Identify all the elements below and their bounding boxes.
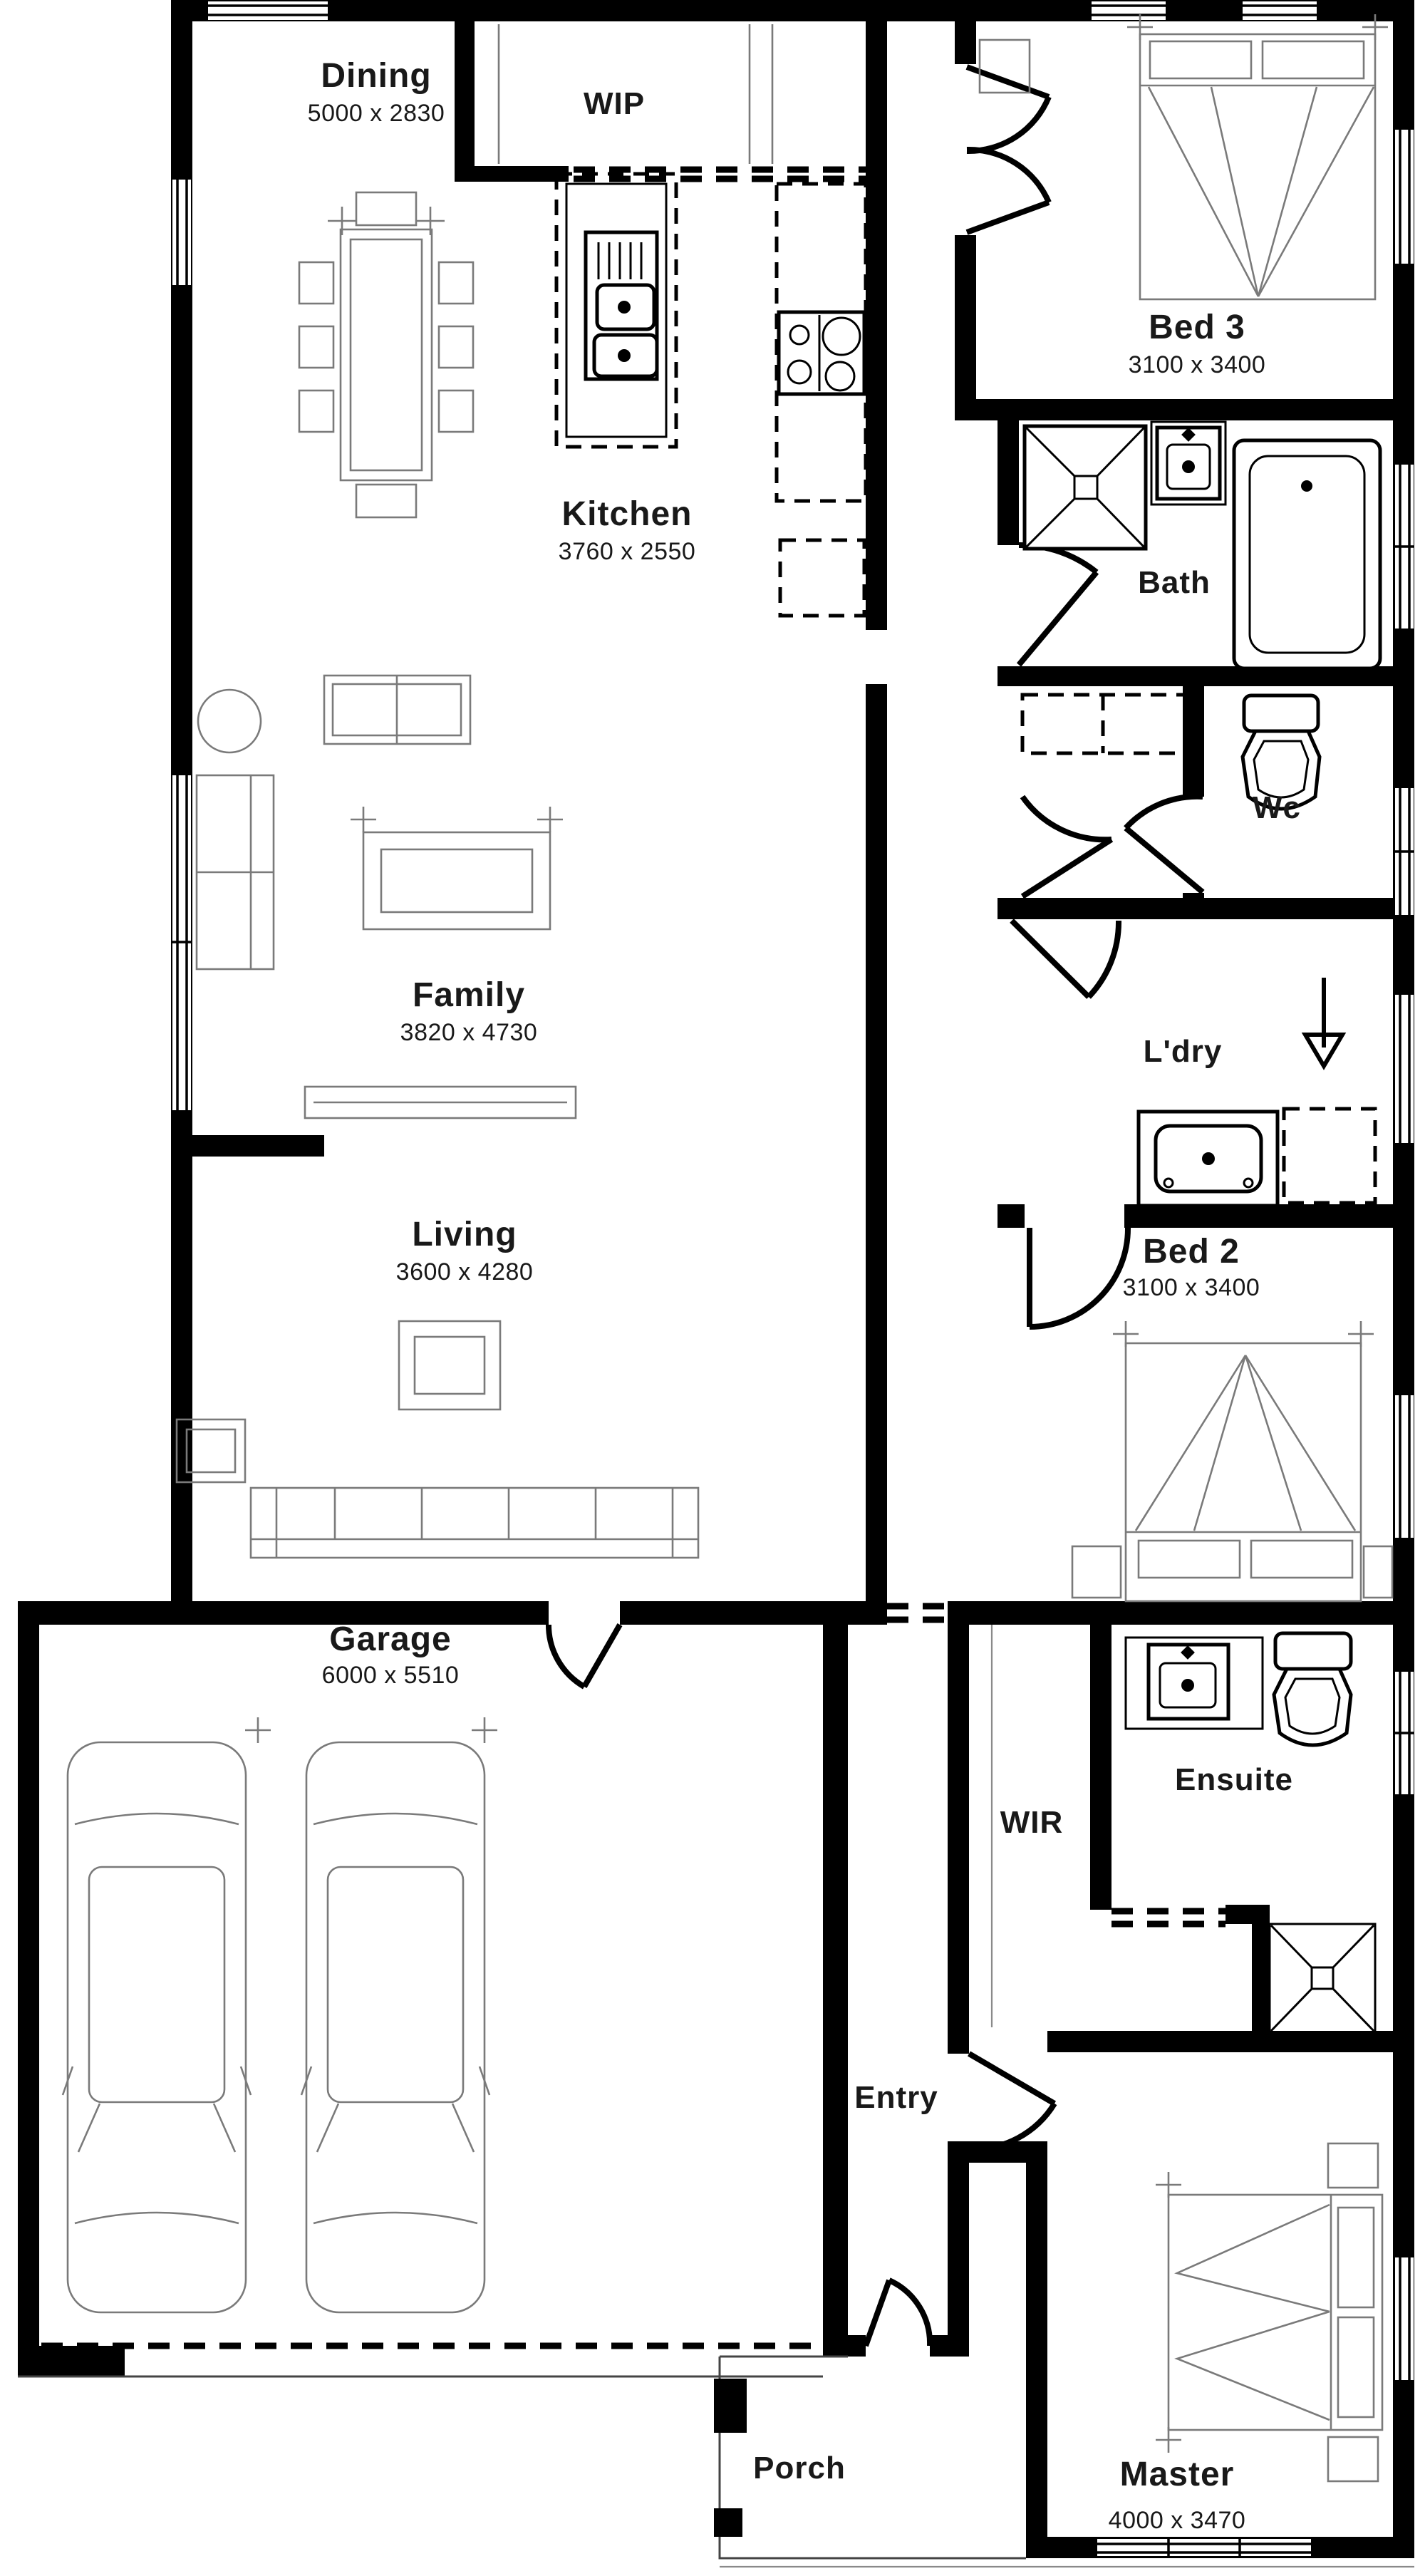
- room-master: [1168, 2143, 1382, 2481]
- window-master-bottom: [1097, 2537, 1311, 2558]
- porch-post: [714, 2379, 747, 2433]
- master-bed-icon: [1168, 2195, 1382, 2430]
- room-label-wc: Wc: [1253, 790, 1301, 825]
- family-sofa-icon: [197, 775, 274, 969]
- bed3-bed-icon: [1140, 34, 1375, 299]
- living-sofa-icon: [251, 1488, 698, 1558]
- kitchen-island: [556, 174, 676, 447]
- bed2-door: [1030, 1228, 1128, 1327]
- room-dims-family: 3820 x 4730: [400, 1019, 538, 1046]
- room-label-kitchen: Kitchen: [561, 495, 692, 533]
- window-bed2-right: [1395, 1395, 1414, 1538]
- room-dims-garage: 6000 x 5510: [322, 1662, 460, 1689]
- car-icon: [301, 1742, 489, 2312]
- vanity-icon: [1151, 422, 1225, 505]
- coffee-table-icon: [363, 832, 550, 929]
- window-bath-right: [1393, 465, 1414, 629]
- room-bath: [1025, 422, 1380, 668]
- sideboard-icon: [324, 676, 470, 744]
- hall-nook-door: [1022, 797, 1111, 896]
- window-dining-top: [208, 1, 328, 20]
- room-family: [197, 676, 576, 1118]
- bed2-bed-icon: [1126, 1343, 1361, 1601]
- room-bed2: [1072, 1343, 1392, 1601]
- window-ldry-right: [1395, 995, 1414, 1143]
- window-bed3-right: [1395, 130, 1414, 264]
- laundry-tub-icon: [1139, 1112, 1278, 1206]
- window-family-left: [171, 775, 192, 1110]
- room-bed3: [980, 34, 1375, 299]
- room-dims-kitchen: 3760 x 2550: [559, 538, 696, 565]
- room-label-garage: Garage: [329, 1620, 451, 1658]
- room-dims-dining: 5000 x 2830: [308, 100, 445, 127]
- dining-table-icon: [299, 192, 473, 517]
- appliance-space: [1284, 1109, 1375, 1203]
- room-label-family: Family: [413, 976, 525, 1014]
- window-master-right: [1395, 2257, 1414, 2380]
- room-label-living: Living: [412, 1216, 517, 1253]
- shower-icon: [1025, 426, 1146, 549]
- room-label-wir: WIR: [1000, 1805, 1064, 1840]
- room-label-bed3: Bed 3: [1149, 309, 1245, 346]
- fridge-space: [780, 540, 864, 616]
- room-label-wip: WIP: [584, 86, 645, 121]
- room-ldry: [1139, 978, 1375, 1206]
- room-dims-bed2: 3100 x 3400: [1123, 1274, 1260, 1301]
- vanity-icon: [1126, 1638, 1263, 1729]
- room-label-dining: Dining: [321, 57, 431, 95]
- room-label-bath: Bath: [1138, 565, 1211, 600]
- front-door: [866, 2280, 930, 2346]
- shower-icon: [1270, 1924, 1375, 2032]
- bedside-table-icon: [1328, 2143, 1378, 2188]
- room-ensuite: [1111, 1633, 1375, 2032]
- room-label-ldry: L'dry: [1144, 1034, 1223, 1069]
- window-bed3-top-2: [1243, 1, 1317, 20]
- tv-unit-icon: [305, 1087, 576, 1118]
- porch-post: [714, 2508, 742, 2537]
- garage-access-door: [549, 1625, 620, 1687]
- coffee-table-icon: [399, 1321, 500, 1409]
- window-bed3-top-1: [1092, 1, 1166, 20]
- floor-plan: Dining 5000 x 2830 WIP Bed 3 3100 x 3400…: [0, 0, 1425, 2576]
- bedside-table-icon: [1072, 1546, 1121, 1598]
- room-garage: [18, 1742, 823, 2376]
- room-label-ensuite: Ensuite: [1175, 1762, 1293, 1797]
- room-dining: [299, 192, 473, 517]
- cooktop-bench: [777, 184, 866, 501]
- room-label-porch: Porch: [753, 2451, 846, 2486]
- bedside-table-icon: [1328, 2437, 1378, 2481]
- side-table-icon: [177, 1419, 245, 1482]
- window-dining-left: [172, 180, 191, 285]
- room-label-bed2: Bed 2: [1143, 1233, 1240, 1271]
- exit-arrow-icon: [1305, 978, 1342, 1066]
- toilet-icon: [1274, 1633, 1351, 1745]
- master-hall-door: [969, 2054, 1054, 2149]
- bath-door: [1019, 545, 1097, 665]
- room-dims-living: 3600 x 4280: [396, 1258, 534, 1286]
- bedside-table-icon: [1364, 1546, 1392, 1598]
- window-ensuite-right: [1393, 1672, 1414, 1794]
- window-wc-right: [1393, 788, 1414, 915]
- room-dims-master: 4000 x 3470: [1109, 2507, 1246, 2534]
- room-label-entry: Entry: [854, 2080, 938, 2115]
- side-table-icon: [198, 690, 261, 752]
- ldry-door: [1012, 921, 1119, 997]
- bathtub-icon: [1234, 440, 1380, 668]
- room-dims-bed3: 3100 x 3400: [1129, 351, 1266, 378]
- room-living: [177, 1321, 698, 1558]
- room-label-master: Master: [1120, 2456, 1235, 2493]
- car-icon: [63, 1742, 251, 2312]
